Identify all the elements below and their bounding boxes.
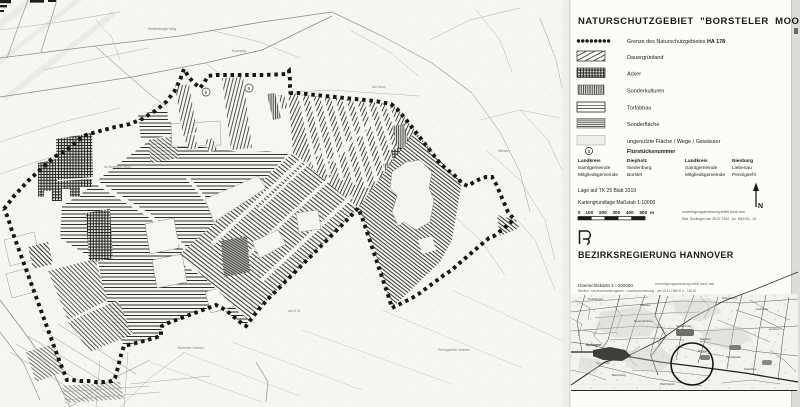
svg-text:Liebenau: Liebenau	[732, 165, 752, 171]
svg-text:Torfabbau: Torfabbau	[627, 106, 651, 112]
svg-text:BEZIRKSREGIERUNG HANNOVER: BEZIRKSREGIERUNG HANNOVER	[578, 250, 734, 260]
svg-text:Moorweg: Moorweg	[232, 49, 246, 53]
svg-text:vorverfügungsanweisung erteilt: vorverfügungsanweisung erteilt durch das	[682, 210, 745, 214]
svg-text:Landkreis: Landkreis	[685, 158, 708, 164]
svg-text:Grenze des Naturschutzgebietes: Grenze des Naturschutzgebietes HA 178	[627, 39, 725, 45]
svg-text:m: m	[650, 210, 654, 215]
svg-text:Dauergrünland: Dauergrünland	[627, 55, 663, 61]
svg-text:Am Moor: Am Moor	[372, 85, 387, 89]
svg-text:300: 300	[613, 210, 621, 215]
svg-text:auf d. M.: auf d. M.	[288, 309, 301, 313]
svg-text:Nienburg: Nienburg	[732, 158, 753, 164]
svg-text:Pennigsehler Wiesen: Pennigsehler Wiesen	[438, 348, 470, 352]
svg-text:Borsteler Wiesen: Borsteler Wiesen	[178, 346, 204, 350]
svg-text:Twistringen: Twistringen	[588, 297, 604, 301]
svg-text:Sonderkulturen: Sonderkulturen	[627, 89, 664, 95]
svg-text:vorverfügungsanweisung erteilt: vorverfügungsanweisung erteilt durch das	[655, 282, 714, 286]
svg-text:Landkreis: Landkreis	[578, 158, 601, 164]
svg-text:Borstel: Borstel	[627, 172, 642, 178]
svg-text:500: 500	[640, 210, 648, 215]
svg-text:Mitgliedsgemeinde: Mitgliedsgemeinde	[578, 172, 618, 178]
svg-text:200: 200	[599, 210, 607, 215]
svg-text:Pennigsehl: Pennigsehl	[726, 355, 741, 359]
svg-text:N: N	[758, 203, 763, 210]
svg-text:Maasen: Maasen	[640, 303, 651, 307]
svg-text:Nds. Sozilegien am 28.07.1942: Nds. Sozilegien am 28.07.1942 - Az. 55(1…	[682, 217, 756, 221]
svg-text:Samtgemeinde: Samtgemeinde	[578, 165, 611, 171]
svg-text:Sonderfläche: Sonderfläche	[627, 122, 659, 128]
svg-text:Wiesen: Wiesen	[498, 149, 509, 153]
svg-text:Barenburg: Barenburg	[612, 373, 626, 377]
svg-text:Siedenburger Weg: Siedenburger Weg	[148, 27, 176, 31]
svg-text:Im Borsteler Moor: Im Borsteler Moor	[104, 165, 132, 169]
svg-text:Neuenkirchen: Neuenkirchen	[634, 319, 653, 323]
svg-text:Übersichtskarte 1 : 200000: Übersichtskarte 1 : 200000	[578, 282, 633, 288]
svg-text:Sulingen: Sulingen	[586, 343, 601, 347]
svg-text:Liebenau: Liebenau	[756, 307, 769, 311]
svg-text:Kartengrundlage Maßstab 1:1000: Kartengrundlage Maßstab 1:10000	[578, 200, 655, 206]
svg-text:NATURSCHUTZGEBIET "BORSTELER: NATURSCHUTZGEBIET "BORSTELER MOO	[578, 16, 799, 27]
svg-text:100: 100	[586, 210, 594, 215]
svg-text:Pennigsehl: Pennigsehl	[732, 172, 756, 178]
svg-text:Nieders. Landesverwaltungsamt: Nieders. Landesverwaltungsamt - Landesve…	[578, 289, 697, 293]
svg-text:Acker: Acker	[627, 72, 641, 78]
svg-text:Diepholz: Diepholz	[627, 158, 648, 164]
svg-text:Samtgemeinde: Samtgemeinde	[685, 165, 718, 171]
svg-text:Siedenburg: Siedenburg	[627, 165, 652, 171]
svg-text:Lage auf TK 25 Blatt 3319: Lage auf TK 25 Blatt 3319	[578, 188, 636, 194]
svg-text:0: 0	[578, 210, 581, 215]
svg-text:Flurstücksnummer: Flurstücksnummer	[627, 149, 676, 155]
svg-text:Mitgliedsgemeinde: Mitgliedsgemeinde	[685, 172, 725, 178]
svg-text:ungenutzte Fläche / Wege / Gew: ungenutzte Fläche / Wege / Gewässer	[627, 139, 721, 145]
svg-text:Loccum: Loccum	[769, 327, 780, 331]
svg-text:Vorwohlde: Vorwohlde	[596, 361, 610, 365]
svg-text:Maasen: Maasen	[700, 337, 711, 341]
svg-text:Siedenburg: Siedenburg	[676, 324, 692, 328]
svg-text:Steimbke: Steimbke	[744, 367, 757, 371]
svg-text:Steyerberg: Steyerberg	[722, 296, 737, 300]
svg-text:Wehrbleck: Wehrbleck	[660, 382, 675, 386]
svg-text:400: 400	[626, 210, 634, 215]
